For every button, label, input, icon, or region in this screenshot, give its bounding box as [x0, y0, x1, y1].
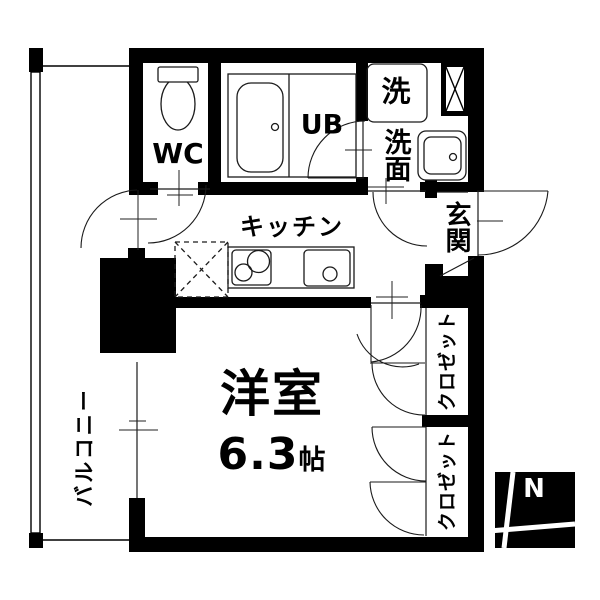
compass-north-label: N	[523, 476, 545, 502]
room-label-balcony: バルコニー	[75, 387, 96, 507]
toilet	[158, 67, 198, 130]
room-size-unit: 帖	[298, 445, 326, 476]
room-label-unit-bath: UB	[301, 112, 344, 139]
room-label-washroom: 洗面	[382, 128, 409, 182]
floorplan: WC UB 洗 洗面 玄関 キッチン 洋室 6.3帖 クロゼット クロゼット バ…	[0, 0, 600, 600]
room-label-kitchen: キッチン	[240, 215, 344, 239]
floorplan-graphics	[0, 0, 600, 600]
room-label-closet-lower: クロゼット	[439, 431, 458, 531]
room-label-western-room: 洋室	[220, 369, 324, 419]
washbasin	[418, 131, 466, 180]
room-label-closet-upper: クロゼット	[439, 311, 458, 411]
kitchen-counter	[228, 247, 354, 288]
room-label-washer: 洗	[381, 78, 410, 107]
refrigerator-space	[175, 242, 228, 297]
room-label-wc: WC	[152, 140, 203, 168]
room-label-entrance: 玄関	[443, 201, 469, 253]
room-size-value: 6.3	[218, 429, 299, 480]
room-size-western-room: 6.3帖	[218, 433, 327, 477]
pipe-shaft	[441, 62, 469, 116]
